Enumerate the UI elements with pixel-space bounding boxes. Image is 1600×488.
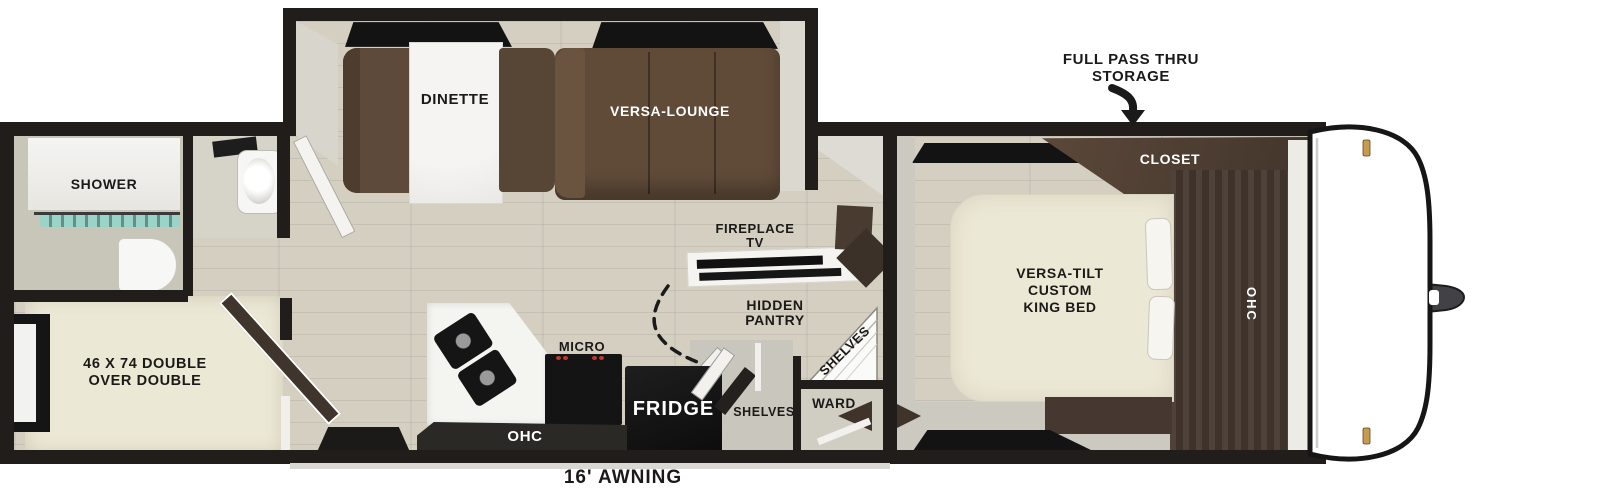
kitchen-ohc-label: OHC bbox=[440, 429, 610, 446]
front-cap bbox=[1306, 116, 1476, 468]
wall-top-front bbox=[805, 122, 1326, 136]
king-bed-label-line1: VERSA-TILT bbox=[960, 266, 1160, 281]
wall-ward-top bbox=[797, 380, 883, 389]
pass-thru-label-line1: FULL PASS THRU bbox=[1056, 52, 1206, 69]
rv-floorplan: SHOWER 46 X 74 DOUBLE OVER DOUBLE DINETT… bbox=[0, 0, 1600, 488]
wall-entry-divider bbox=[755, 343, 761, 391]
closet-label: CLOSET bbox=[1130, 152, 1210, 167]
shelves-hall-label: SHELVES bbox=[726, 406, 802, 420]
wall-slideout-top bbox=[283, 8, 818, 21]
cap-clip-top bbox=[1363, 140, 1370, 156]
fridge-label: FRIDGE bbox=[627, 398, 720, 420]
cap-clip-bottom bbox=[1363, 428, 1370, 444]
wall-toilet-right bbox=[277, 136, 290, 238]
bedroom-corner-wardrobe bbox=[897, 404, 921, 428]
hitch-latch bbox=[1429, 290, 1439, 305]
wall-bedroom-divider bbox=[883, 136, 897, 450]
burner-knob bbox=[592, 356, 597, 360]
burner-knob bbox=[556, 356, 561, 360]
range-microwave bbox=[545, 354, 622, 425]
micro-label: MICRO bbox=[552, 340, 612, 354]
wall-shower-divider bbox=[183, 136, 193, 296]
king-bed-label-line2: CUSTOM bbox=[960, 283, 1160, 298]
wall-bottom bbox=[8, 450, 1326, 464]
bed-foot-bench bbox=[1045, 397, 1172, 434]
pillow bbox=[1147, 296, 1175, 361]
wall-bath-bottom bbox=[8, 290, 188, 302]
wall-bunk-partial bbox=[280, 298, 292, 340]
wall-top-rear bbox=[8, 122, 283, 136]
wall-slideout-left bbox=[283, 8, 296, 136]
burner-knob bbox=[599, 356, 604, 360]
pillow bbox=[1145, 218, 1173, 291]
bedroom-ohc-label: OHC bbox=[1236, 282, 1258, 326]
bedroom-ohc-cabinet bbox=[1170, 170, 1290, 452]
king-bed-label-line3: KING BED bbox=[960, 300, 1160, 315]
pass-thru-arrow-icon bbox=[1106, 86, 1150, 128]
wall-slideout-right bbox=[805, 8, 818, 190]
pass-thru-label-line2: STORAGE bbox=[1056, 69, 1206, 86]
burner-knob bbox=[563, 356, 568, 360]
wall-ward-left bbox=[793, 356, 801, 450]
wall-bunk-white bbox=[281, 396, 290, 450]
awning-label: 16' AWNING bbox=[510, 468, 736, 488]
